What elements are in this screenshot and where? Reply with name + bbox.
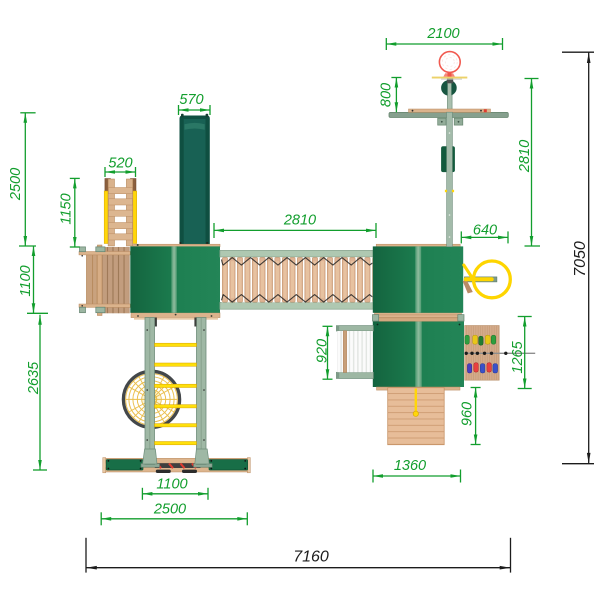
svg-text:1100: 1100 [18, 265, 34, 296]
svg-text:1100: 1100 [156, 477, 187, 493]
svg-text:2500: 2500 [153, 502, 186, 518]
svg-text:2810: 2810 [283, 213, 316, 229]
svg-text:7160: 7160 [293, 549, 329, 566]
svg-text:520: 520 [108, 156, 132, 172]
svg-text:2100: 2100 [426, 26, 459, 42]
svg-text:1360: 1360 [394, 458, 426, 474]
svg-text:1150: 1150 [59, 193, 75, 224]
svg-text:7050: 7050 [572, 241, 589, 277]
svg-text:570: 570 [179, 92, 203, 108]
svg-text:2810: 2810 [517, 140, 533, 173]
svg-text:2635: 2635 [26, 361, 42, 395]
svg-text:960: 960 [459, 402, 475, 426]
svg-text:800: 800 [378, 83, 394, 107]
svg-text:920: 920 [315, 339, 331, 363]
svg-text:1265: 1265 [510, 340, 526, 373]
svg-text:640: 640 [473, 223, 497, 239]
svg-text:2500: 2500 [8, 168, 24, 201]
